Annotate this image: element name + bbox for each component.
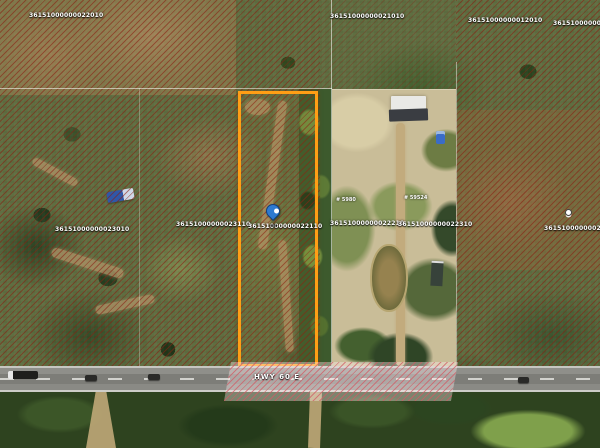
parcel-id-label: 36151000000023010 bbox=[55, 226, 129, 233]
selected-parcel-id-label: 36151000000022110 bbox=[248, 223, 322, 230]
parcel-id-label: 36151000000011010 bbox=[553, 20, 600, 27]
house-roof bbox=[389, 108, 428, 121]
parcel-boundary-line bbox=[332, 89, 456, 90]
parcel-id-label: 36151000000022010 bbox=[29, 12, 103, 19]
truck-on-road bbox=[8, 371, 38, 379]
aerial-parcel-map[interactable]: 36151000000022010 36151000000021010 3615… bbox=[0, 0, 600, 448]
car-on-road bbox=[518, 377, 529, 383]
hatched-parcel-overlay bbox=[456, 0, 600, 368]
pond bbox=[370, 244, 408, 312]
parcel-id-label: 36151000000023110 bbox=[176, 221, 250, 228]
pin-dot bbox=[273, 209, 278, 214]
parcel-id-label: 36151000000022310 bbox=[398, 221, 472, 228]
driveway bbox=[396, 123, 405, 366]
site-number-label: # 5980 bbox=[336, 197, 356, 203]
parcel-boundary-line bbox=[139, 88, 140, 368]
shed bbox=[430, 261, 443, 287]
site-number-label: # 59524 bbox=[404, 195, 427, 201]
location-pin-icon[interactable] bbox=[265, 203, 281, 225]
pin-body bbox=[263, 201, 283, 221]
parcel-id-label: 36151000000021310 bbox=[544, 225, 600, 232]
parcel-id-label: 36151000000022210 bbox=[330, 220, 404, 227]
parcel-id-label: 36151000000021010 bbox=[330, 13, 404, 20]
car-on-road bbox=[85, 375, 97, 381]
car-on-road bbox=[148, 374, 160, 380]
road-name-label: HWY 60 E bbox=[254, 373, 300, 381]
parcel-boundary-line bbox=[0, 88, 332, 89]
parcel-boundary-line bbox=[456, 62, 457, 368]
road-right-of-way-overlay bbox=[224, 362, 458, 401]
parked-car bbox=[436, 131, 445, 144]
parcel-boundary-line bbox=[331, 0, 332, 368]
mini-marker-icon[interactable] bbox=[565, 209, 572, 216]
parcel-id-label: 36151000000012010 bbox=[468, 17, 542, 24]
